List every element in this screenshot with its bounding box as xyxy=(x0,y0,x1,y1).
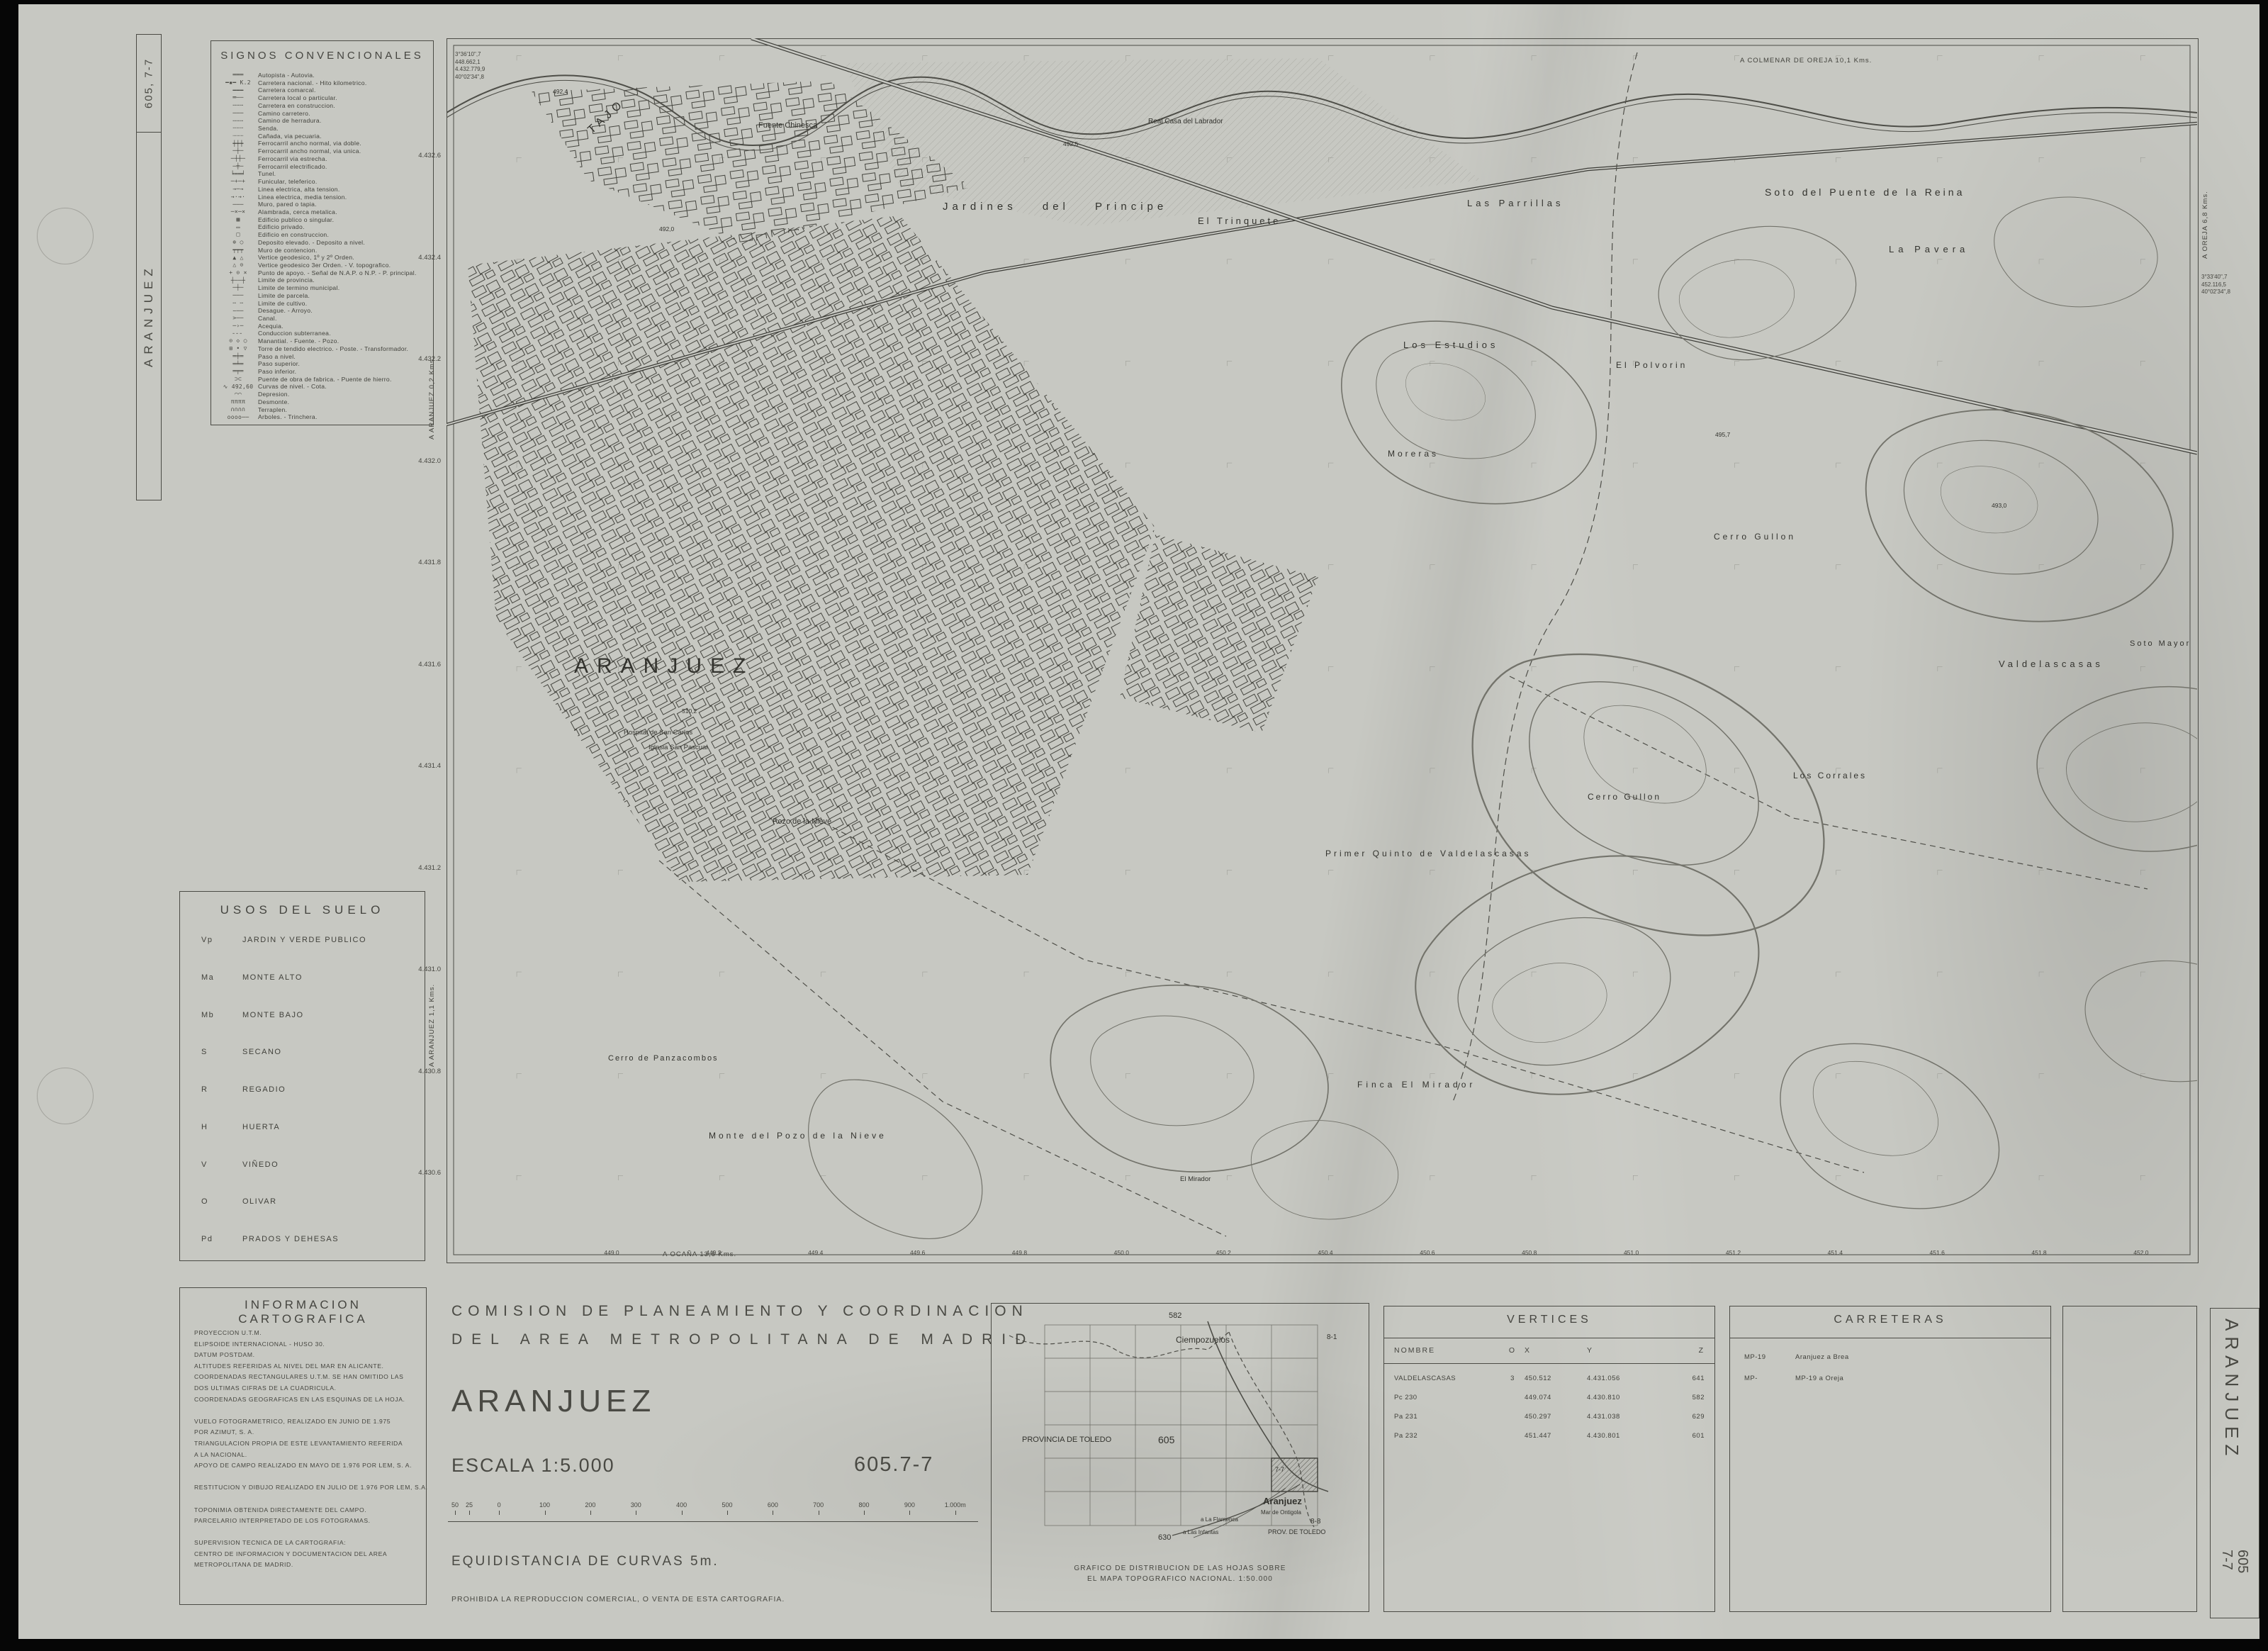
carto-info-line: CENTRO DE INFORMACION Y DOCUMENTACION DE… xyxy=(194,1549,419,1560)
legend-symbol-icon: ─── xyxy=(218,111,258,116)
inset-label-8-1: 8-1 xyxy=(1327,1333,1337,1341)
sheet-code-tab: 605, 7-7 xyxy=(136,34,162,133)
legend-item: ━━━ Carretera comarcal. xyxy=(218,87,427,94)
scale-bar-tick-label: 900 xyxy=(887,1501,932,1509)
legend-item-label: Carretera en construccion. xyxy=(258,103,427,109)
legend-item: ╌╌╌ Carretera en construccion. xyxy=(218,103,427,109)
scale-bar-tick-label: 600 xyxy=(750,1501,795,1509)
legend-symbol-icon: ⌒⌒ xyxy=(218,391,258,397)
legend-symbol-icon: ┿┿┿ xyxy=(218,141,258,147)
grid-label: 4.431.0 xyxy=(380,966,441,973)
carretera-row: MP-19 Aranjuez a Brea xyxy=(1730,1346,2050,1367)
topographic-map: 492,4 492,0 492,5 493,0 495,7 510,2 TAJO… xyxy=(447,38,2197,1262)
carto-info-line: COORDENADAS GEOGRAFICAS EN LAS ESQUINAS … xyxy=(194,1394,419,1406)
carto-info-line: PARCELARIO INTERPRETADO DE LOS FOTOGRAMA… xyxy=(194,1516,419,1527)
vertex-y: 4.430.810 xyxy=(1587,1394,1665,1401)
vertices-col-nombre: NOMBRE xyxy=(1384,1346,1500,1355)
legend-item: ┿┿┿ Ferrocarril ancho normal, via doble. xyxy=(218,140,427,147)
legend-symbol-icon: ─┼─ xyxy=(218,148,258,154)
svg-text:492,5: 492,5 xyxy=(1063,140,1079,147)
code-605: 605 xyxy=(2235,1550,2250,1611)
carto-info-line: APOYO DE CAMPO REALIZADO EN MAYO DE 1.97… xyxy=(194,1460,419,1472)
grid-label: 450.4 xyxy=(1310,1249,1340,1256)
land-use-label: JARDIN Y VERDE PUBLICO xyxy=(242,936,366,944)
legend-symbol-icon: ▲ △ xyxy=(218,255,258,261)
label-primer-quinto: Primer Quinto de Valdelascasas xyxy=(1325,849,1532,858)
legend-symbol-icon: ─+─+ xyxy=(218,179,258,184)
grid-label: 451.4 xyxy=(1820,1249,1850,1256)
vertex-z: 629 xyxy=(1665,1413,1705,1421)
legend-title: SIGNOS CONVENCIONALES xyxy=(211,50,433,62)
legend-symbol-icon: ∩∩∩∩ xyxy=(218,407,258,413)
carto-info-line: RESTITUCION Y DIBUJO REALIZADO EN JULIO … xyxy=(194,1482,419,1494)
land-use-label: MONTE ALTO xyxy=(242,973,303,982)
vertex-x: 451.447 xyxy=(1525,1432,1587,1440)
legend-symbol-icon: □ xyxy=(218,232,258,237)
land-use-code: O xyxy=(201,1197,242,1206)
legend-item-label: Camino carretero. xyxy=(258,111,427,117)
carto-info-line: PROYECCION U.T.M. xyxy=(194,1328,419,1339)
carto-info-line xyxy=(194,1494,419,1505)
inset-label-prov-toledo-2: PROV. DE TOLEDO xyxy=(1268,1528,1325,1535)
grid-label: 449.6 xyxy=(903,1249,933,1256)
grid-label: 4.432.4 xyxy=(380,254,441,262)
scale-bar-tick-label: 1.000m xyxy=(933,1501,978,1509)
grid-labels-bottom: 449.0449.2449.4449.6449.8450.0450.2450.4… xyxy=(597,1249,2156,1256)
label-polvorin: El Polvorin xyxy=(1616,360,1688,370)
scale-bar-tick-label: 700 xyxy=(796,1501,841,1509)
label-fuente-chinesca: Fuente Chinesca xyxy=(758,121,818,130)
legend-item-label: Senda. xyxy=(258,125,427,132)
scale-bar-tick-label: 500 xyxy=(704,1501,750,1509)
code-7-7: 7-7 xyxy=(2219,1550,2235,1611)
vertex-x: 450.512 xyxy=(1525,1375,1587,1382)
scale-label: ESCALA 1:5.000 xyxy=(451,1455,615,1477)
scale-bar-tick-label: 300 xyxy=(613,1501,658,1509)
corner-coord-line: 3°36'10",7 xyxy=(455,51,485,59)
grid-label: 451.8 xyxy=(2024,1249,2054,1256)
vertices-panel: VERTICES NOMBRE O X Y Z VALDELASCASAS 3 … xyxy=(1383,1306,1715,1612)
carreteras-title: CARRETERAS xyxy=(1730,1314,2050,1326)
legend-item: ━▪━ K.2 Carretera nacional. - Hito kilom… xyxy=(218,80,427,86)
carto-info-line: A LA NACIONAL. xyxy=(194,1450,419,1461)
land-use-label: MONTE BAJO xyxy=(242,1011,304,1019)
corner-coord-line: 40°02'34",8 xyxy=(2201,289,2230,296)
org-name-line2: DEL AREA METROPOLITANA DE MADRID xyxy=(451,1331,1035,1348)
legend-symbol-icon: ─›─ xyxy=(218,323,258,329)
vertex-y: 4.431.038 xyxy=(1587,1413,1665,1421)
svg-text:510,2: 510,2 xyxy=(682,707,697,715)
grid-label: 451.6 xyxy=(1922,1249,1952,1256)
grid-labels-left: 4.432.64.432.44.432.24.432.04.431.84.431… xyxy=(380,152,441,1177)
grid-label: 4.430.8 xyxy=(380,1068,441,1075)
vertices-title: VERTICES xyxy=(1384,1314,1714,1326)
land-use-code: S xyxy=(201,1048,242,1056)
legend-symbol-icon: →─→ xyxy=(218,186,258,192)
vertex-z: 601 xyxy=(1665,1432,1705,1440)
vertices-row: Pc 230 449.074 4.430.810 582 xyxy=(1384,1388,1714,1407)
corner-coord-line: 452.116,5 xyxy=(2201,281,2230,289)
inset-label-ciempozuelos: Ciempozuelos xyxy=(1176,1335,1230,1345)
carto-info-panel: INFORMACION CARTOGRAFICA PROYECCION U.T.… xyxy=(179,1287,427,1605)
inset-label-flamenca: a La Flamenca xyxy=(1201,1516,1238,1523)
legend-symbol-icon: ┯┯┯ xyxy=(218,247,258,253)
inset-label-630: 630 xyxy=(1158,1533,1171,1541)
label-trinquete: El Trinquete xyxy=(1198,216,1281,226)
legend-item: ─── Camino carretero. xyxy=(218,111,427,117)
label-corrales: Los Corrales xyxy=(1793,771,1867,780)
vertices-col-o: O xyxy=(1500,1346,1525,1355)
carto-info-line: ALTITUDES REFERIDAS AL NIVEL DEL MAR EN … xyxy=(194,1361,419,1372)
grid-label: 449.4 xyxy=(801,1249,831,1256)
legend-symbol-icon: ═══ xyxy=(218,72,258,78)
copyright-note: PROHIBIDA LA REPRODUCCION COMERCIAL, O V… xyxy=(451,1595,785,1604)
land-use-label: PRADOS Y DEHESAS xyxy=(242,1235,339,1243)
label-cerro-gullon-1: Cerro Gullon xyxy=(1714,532,1796,542)
carretera-code: MP-19 xyxy=(1744,1353,1795,1361)
inset-label-8-8: 8-8 xyxy=(1310,1518,1321,1526)
grid-label: 4.432.6 xyxy=(380,152,441,159)
road-note-top: A COLMENAR DE OREJA 10,1 Kms. xyxy=(1740,57,1872,65)
inset-label-ontigola: Mar de Ontigola xyxy=(1261,1509,1301,1516)
inset-label-582: 582 xyxy=(1169,1311,1181,1320)
carto-info-line: ELIPSOIDE INTERNACIONAL - HUSO 30. xyxy=(194,1339,419,1350)
carto-info-line: COORDENADAS RECTANGULARES U.T.M. SE HAN … xyxy=(194,1372,419,1383)
land-use-code: Ma xyxy=(201,973,242,982)
scale-bar-tick-label: 100 xyxy=(522,1501,567,1509)
legend-symbol-icon: ╌╌╌ xyxy=(218,103,258,108)
carreteras-rows: MP-19 Aranjuez a Brea MP- MP-19 a Oreja xyxy=(1730,1346,2050,1389)
scale-bar-tick-label: 0 xyxy=(476,1501,522,1509)
label-cerro-gullon-2: Cerro Gullon xyxy=(1588,792,1661,802)
carto-info-line xyxy=(194,1527,419,1538)
carto-info-lines: PROYECCION U.T.M.ELIPSOIDE INTERNACIONAL… xyxy=(194,1328,419,1571)
corner-coords-top-right: 3°33'40",7452.116,540°02'34",8 xyxy=(2201,274,2230,296)
right-margin-sheet-name: ARANJUEZ xyxy=(2221,1319,2242,1545)
legend-item-label: Ferrocarril ancho normal, via doble. xyxy=(258,140,427,147)
scale-bar-line xyxy=(448,1521,978,1522)
carto-info-line: METROPOLITANA DE MADRID. xyxy=(194,1560,419,1571)
vertices-col-z: Z xyxy=(1665,1346,1705,1355)
sheet-code-vertical: 605, 7-7 xyxy=(137,35,161,132)
land-use-label: VIÑEDO xyxy=(242,1160,279,1169)
svg-text:492,0: 492,0 xyxy=(659,225,675,233)
legend-symbol-icon: ⊙ ◇ ○ xyxy=(218,338,258,344)
inset-label-infantas: a Las Infantas xyxy=(1183,1529,1218,1535)
vertex-name: Pa 232 xyxy=(1384,1432,1500,1440)
land-use-code: Pd xyxy=(201,1235,242,1243)
right-margin-sheet-code: 605 7-7 xyxy=(2219,1550,2250,1611)
grid-label: 451.2 xyxy=(1718,1249,1748,1256)
svg-text:492,4: 492,4 xyxy=(553,88,568,95)
legend-symbol-icon: ─┼┼─ xyxy=(218,156,258,162)
legend-symbol-icon: oooo── xyxy=(218,415,258,420)
grid-label: 4.431.4 xyxy=(380,762,441,770)
legend-item: ═── Carretera local o particular. xyxy=(218,95,427,101)
inset-map: 582 Ciempozuelos 8-1 PROVINCIA DE TOLEDO… xyxy=(995,1307,1364,1541)
inset-caption: GRAFICO DE DISTRIBUCION DE LAS HOJAS SOB… xyxy=(992,1562,1369,1583)
label-monte-pozo: Monte del Pozo de la Nieve xyxy=(709,1131,887,1141)
legend-symbol-icon: ━▪━ K.2 xyxy=(218,80,258,86)
grid-label: 449.8 xyxy=(1004,1249,1034,1256)
carto-info-line: TOPONIMIA OBTENIDA DIRECTAMENTE DEL CAMP… xyxy=(194,1505,419,1516)
legend-symbol-icon: ─── xyxy=(218,202,258,208)
carto-info-line: TRIANGULACION PROPIA DE ESTE LEVANTAMIEN… xyxy=(194,1438,419,1450)
vertices-row: Pa 231 450.297 4.431.038 629 xyxy=(1384,1407,1714,1426)
legend-symbol-icon: ═╤═ xyxy=(218,369,258,374)
scale-bar-tick-label: 50 xyxy=(448,1501,462,1509)
legend-item-label: Autopista - Autovia. xyxy=(258,72,427,79)
scale-bar-labels: 502501002003004005006007008009001.000m xyxy=(448,1501,978,1509)
label-aranjuez-city: ARANJUEZ xyxy=(574,654,754,678)
inset-label-prov-toledo: PROVINCIA DE TOLEDO xyxy=(1022,1435,1112,1444)
label-real-casa: Real Casa del Labrador xyxy=(1148,118,1223,125)
sheet-title: ARANJUEZ xyxy=(451,1384,656,1419)
vertex-order: 3 xyxy=(1500,1375,1525,1382)
land-use-code: Mb xyxy=(201,1011,242,1019)
legend-item-label: Camino de herradura. xyxy=(258,118,427,124)
corner-coord-line: 448.662,1 xyxy=(455,59,485,67)
vertex-z: 582 xyxy=(1665,1394,1705,1401)
legend-symbol-icon: ═╧═ xyxy=(218,362,258,367)
label-jardines: Jardines del Principe xyxy=(943,201,1167,213)
legend-symbol-icon: △ ⊙ xyxy=(218,262,258,268)
label-estudios: Los Estudios xyxy=(1403,340,1498,350)
map-sheet-page: 605, 7-7 ARANJUEZ SIGNOS CONVENCIONALES … xyxy=(0,0,2268,1651)
road-note-right: A OREJA 6,8 Kms. xyxy=(2201,142,2209,259)
carretera-destination: MP-19 a Oreja xyxy=(1795,1375,1843,1382)
grid-label: 449.2 xyxy=(699,1249,729,1256)
grid-label: 4.432.0 xyxy=(380,457,441,465)
sheet-name-tab: ARANJUEZ xyxy=(136,131,162,500)
inset-label-605: 605 xyxy=(1158,1434,1175,1445)
label-parrillas: Las Parrillas xyxy=(1467,198,1564,208)
sheet-name-vertical: ARANJUEZ xyxy=(137,131,161,500)
grid-label: 452.0 xyxy=(2126,1249,2156,1256)
carto-info-line xyxy=(194,1405,419,1416)
vertices-header-row: NOMBRE O X Y Z xyxy=(1384,1341,1714,1360)
legend-item: ═══ Autopista - Autovia. xyxy=(218,72,427,79)
vertex-name: Pc 230 xyxy=(1384,1394,1500,1401)
grid-label: 450.0 xyxy=(1106,1249,1136,1256)
sheet-index-inset: 582 Ciempozuelos 8-1 PROVINCIA DE TOLEDO… xyxy=(991,1303,1369,1612)
vertex-y: 4.430.801 xyxy=(1587,1432,1665,1440)
inset-caption-line1: GRAFICO DE DISTRIBUCION DE LAS HOJAS SOB… xyxy=(992,1565,1369,1572)
carreteras-panel: CARRETERAS MP-19 Aranjuez a Brea MP- MP-… xyxy=(1729,1306,2051,1612)
legend-symbol-icon: ─╪─ xyxy=(218,164,258,169)
label-finca-mirador: Finca El Mirador xyxy=(1357,1080,1476,1090)
corner-coord-line: 4.432.779,9 xyxy=(455,66,485,74)
grid-label: 450.6 xyxy=(1413,1249,1442,1256)
carretera-row: MP- MP-19 a Oreja xyxy=(1730,1367,2050,1389)
label-soto-puente: Soto del Puente de la Reina xyxy=(1765,186,1965,198)
svg-text:493,0: 493,0 xyxy=(1992,502,2007,509)
legend-symbol-icon: ⊞ • ▽ xyxy=(218,346,258,352)
scale-bar: 502501002003004005006007008009001.000m xyxy=(448,1501,978,1522)
scale-bar-tick-label: 800 xyxy=(841,1501,887,1509)
land-use-code: R xyxy=(201,1085,242,1094)
corner-coord-line: 40°02'34",8 xyxy=(455,74,485,82)
svg-text:495,7: 495,7 xyxy=(1715,431,1731,438)
vertex-name: VALDELASCASAS xyxy=(1384,1375,1500,1382)
legend-symbol-icon: ─── xyxy=(218,293,258,298)
inset-label-7-7: 7-7 xyxy=(1275,1466,1284,1473)
scale-bar-tick-label: 25 xyxy=(462,1501,476,1509)
grid-label: 4.431.8 xyxy=(380,559,441,566)
sheet-code: 605.7-7 xyxy=(854,1453,933,1477)
legend-symbol-icon: ▩ xyxy=(218,217,258,223)
legend-symbol-icon: + ⊙ × xyxy=(218,270,258,276)
corner-coords-top-left: 3°36'10",7448.662,14.432.779,940°02'34",… xyxy=(455,51,485,81)
legend-item-label: Carretera comarcal. xyxy=(258,87,427,94)
vertex-x: 450.297 xyxy=(1525,1413,1587,1421)
legend-symbol-icon: ═── xyxy=(218,95,258,101)
legend-symbol-icon: ╘══╛ xyxy=(218,172,258,177)
grid-label: 4.431.6 xyxy=(380,661,441,668)
land-use-item: Pd PRADOS Y DEHESAS xyxy=(201,1235,415,1243)
grid-label: 451.0 xyxy=(1617,1249,1646,1256)
legend-item: ╌╌╌ Camino de herradura. xyxy=(218,118,427,124)
vertices-rows: VALDELASCASAS 3 450.512 4.431.056 641 Pc… xyxy=(1384,1369,1714,1445)
legend-symbol-icon: ∿ 492,60 xyxy=(218,384,258,390)
legend-symbol-icon: ╌ ╌ xyxy=(218,301,258,306)
land-use-label: SECANO xyxy=(242,1048,281,1056)
label-hospital: Hospital de San Carlos xyxy=(624,729,692,737)
legend-symbol-icon: ▭ xyxy=(218,225,258,230)
vertices-row: VALDELASCASAS 3 450.512 4.431.056 641 xyxy=(1384,1369,1714,1388)
land-use-item: O OLIVAR xyxy=(201,1197,415,1206)
legend-item: ┄┄┄ Senda. xyxy=(218,125,427,132)
label-soto-mayor: Soto Mayor xyxy=(2130,639,2191,648)
legend-item-label: Cañada, via pecuaria. xyxy=(258,133,427,140)
carto-info-line: SUPERVISION TECNICA DE LA CARTOGRAFIA: xyxy=(194,1538,419,1549)
grid-label: 450.8 xyxy=(1515,1249,1544,1256)
empty-panel xyxy=(2062,1306,2197,1612)
label-moreras: Moreras xyxy=(1388,449,1439,459)
legend-item-label: Carretera local o particular. xyxy=(258,95,427,101)
legend-symbol-icon: ═╪═ xyxy=(218,354,258,359)
legend-symbol-icon: ∼── xyxy=(218,308,258,314)
land-use-label: REGADIO xyxy=(242,1085,286,1094)
carto-info-line xyxy=(194,1472,419,1483)
legend-symbol-icon: ┄┄┄ xyxy=(218,125,258,131)
carto-info-line: DATUM POSTDAM. xyxy=(194,1350,419,1361)
legend-symbol-icon: ┼──┼ xyxy=(218,278,258,284)
land-use-label: OLIVAR xyxy=(242,1197,277,1206)
carretera-destination: Aranjuez a Brea xyxy=(1795,1353,1849,1361)
label-cerro-panza: Cerro de Panzacombos xyxy=(608,1054,719,1063)
vertices-row: Pa 232 451.447 4.430.801 601 xyxy=(1384,1426,1714,1445)
legend-symbol-icon: ππππ xyxy=(218,399,258,405)
equidistance-note: EQUIDISTANCIA DE CURVAS 5m. xyxy=(451,1554,719,1569)
carto-info-line: POR AZIMUT, S. A. xyxy=(194,1427,419,1438)
vertex-name: Pa 231 xyxy=(1384,1413,1500,1421)
corner-coord-line: 3°33'40",7 xyxy=(2201,274,2230,281)
label-pavera: La Pavera xyxy=(1889,244,1969,254)
punch-hole-bottom xyxy=(37,1068,94,1124)
grid-label: 4.430.6 xyxy=(380,1169,441,1177)
right-margin-label-box: ARANJUEZ 605 7-7 xyxy=(2210,1308,2259,1618)
vertices-col-y: Y xyxy=(1587,1346,1665,1355)
inset-label-aranjuez: Aranjuez xyxy=(1263,1496,1302,1506)
legend-symbol-icon: ⊃⊂ xyxy=(218,376,258,382)
legend-symbol-icon: →·→· xyxy=(218,194,258,200)
vertex-y: 4.431.056 xyxy=(1587,1375,1665,1382)
carretera-code: MP- xyxy=(1744,1375,1795,1382)
scale-bar-tick-label: 400 xyxy=(658,1501,704,1509)
land-use-code: V xyxy=(201,1160,242,1169)
land-use-code: Vp xyxy=(201,936,242,944)
carto-info-line: DOS ULTIMAS CIFRAS DE LA CUADRICULA. xyxy=(194,1383,419,1394)
legend-symbol-icon: ━━━ xyxy=(218,88,258,94)
inset-caption-line2: EL MAPA TOPOGRAFICO NACIONAL. 1:50.000 xyxy=(992,1575,1369,1583)
vertex-z: 641 xyxy=(1665,1375,1705,1382)
label-iglesia: Iglesia San Pascual xyxy=(649,744,707,751)
grid-label: 4.432.2 xyxy=(380,355,441,363)
legend-symbol-icon: ╴╴╴ xyxy=(218,331,258,337)
legend-item-label: Carretera nacional. - Hito kilometrico. xyxy=(258,80,427,86)
grid-label: 450.2 xyxy=(1208,1249,1238,1256)
label-mirador: El Mirador xyxy=(1180,1175,1211,1183)
vertex-x: 449.074 xyxy=(1525,1394,1587,1401)
legend-symbol-icon: ─┼─ xyxy=(218,285,258,291)
land-use-label: HUERTA xyxy=(242,1123,280,1131)
legend-symbol-icon: ⊕ ○ xyxy=(218,240,258,245)
grid-label: 4.431.2 xyxy=(380,864,441,872)
legend-symbol-icon: ╌╌╌ xyxy=(218,118,258,124)
legend-item: ┈┈┈ Cañada, via pecuaria. xyxy=(218,133,427,140)
vertices-col-x: X xyxy=(1525,1346,1587,1355)
carto-info-title: INFORMACION CARTOGRAFICA xyxy=(180,1298,426,1326)
grid-label: 449.0 xyxy=(597,1249,627,1256)
org-name-line1: COMISION DE PLANEAMIENTO Y COORDINACION xyxy=(451,1303,1028,1320)
label-pozo-nieve: Pozo de la Nieve xyxy=(773,817,831,826)
label-valdelascasas: Valdelascasas xyxy=(1999,659,2104,669)
land-use-code: H xyxy=(201,1123,242,1131)
punch-hole-top xyxy=(37,208,94,264)
legend-symbol-icon: ─×─× xyxy=(218,209,258,215)
legend-symbol-icon: >── xyxy=(218,315,258,321)
carto-info-line: VUELO FOTOGRAMETRICO, REALIZADO EN JUNIO… xyxy=(194,1416,419,1428)
legend-symbol-icon: ┈┈┈ xyxy=(218,133,258,139)
scale-bar-tick-label: 200 xyxy=(568,1501,613,1509)
